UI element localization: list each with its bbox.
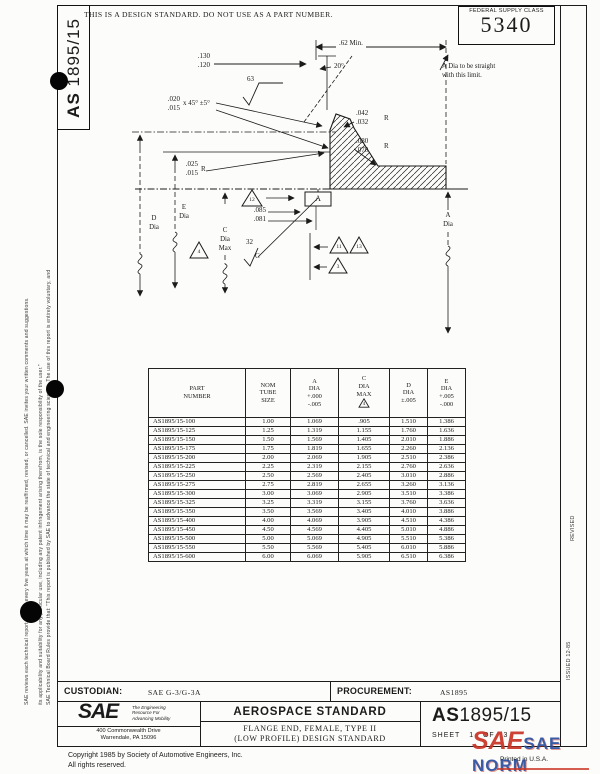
dimension-cell: 3.155 bbox=[339, 499, 390, 508]
table-row: AS1895/15-2252.252.3192.1552.7602.636 bbox=[149, 463, 466, 472]
table-row: AS1895/15-5505.505.5695.4056.0105.886 bbox=[149, 544, 466, 553]
part-number-cell: AS1895/15-275 bbox=[149, 481, 246, 490]
dimension-cell: 3.569 bbox=[291, 508, 339, 517]
dimension-cell: 2.636 bbox=[428, 463, 466, 472]
radius-r2: R bbox=[384, 142, 389, 151]
dimension-cell: 4.069 bbox=[291, 517, 339, 526]
dimension-cell: 4.886 bbox=[428, 526, 466, 535]
table-row: AS1895/15-3503.503.5693.4054.0103.886 bbox=[149, 508, 466, 517]
dimension-cell: 3.386 bbox=[428, 490, 466, 499]
titleblock-divider-2 bbox=[420, 701, 421, 746]
part-number-cell: AS1895/15-150 bbox=[149, 436, 246, 445]
flag-3-number: 3 bbox=[330, 264, 346, 270]
sae-address: 400 Commonwealth Drive Warrendale, PA 15… bbox=[62, 728, 195, 742]
dimension-cell: 4.386 bbox=[428, 517, 466, 526]
dimension-cell: 5.905 bbox=[339, 553, 390, 562]
revised-label: REVISED bbox=[570, 483, 576, 541]
dimension-cell: 2.25 bbox=[246, 463, 291, 472]
dimension-cell: 4.010 bbox=[390, 508, 428, 517]
dimension-cell: 1.655 bbox=[339, 445, 390, 454]
dimension-cell: 2.75 bbox=[246, 481, 291, 490]
table-row: AS1895/15-6006.006.0695.9056.5106.386 bbox=[149, 553, 466, 562]
table-row: AS1895/15-1001.001.069.9051.5101.386 bbox=[149, 418, 466, 427]
footer-doc-number: AS1895/15 bbox=[432, 705, 532, 727]
dimension-cell: 6.386 bbox=[428, 553, 466, 562]
dimension-cell: 2.905 bbox=[339, 490, 390, 499]
dimension-cell: 1.636 bbox=[428, 427, 466, 436]
flag-12-number: 12 bbox=[244, 197, 260, 203]
part-number-cell: AS1895/15-500 bbox=[149, 535, 246, 544]
flag-13-number: 13 bbox=[351, 244, 367, 250]
dimension-cell: 1.00 bbox=[246, 418, 291, 427]
custodian-value: SAE G-3/G-3A bbox=[148, 688, 201, 697]
dimension-cell: 3.510 bbox=[390, 490, 428, 499]
dimension-cell: 4.50 bbox=[246, 526, 291, 535]
dimension-cell: 2.386 bbox=[428, 454, 466, 463]
c-dia-label: C Dia Max bbox=[212, 226, 238, 253]
dimension-cell: 1.75 bbox=[246, 445, 291, 454]
dimension-cell: 4.405 bbox=[339, 526, 390, 535]
sae-logo: SAE bbox=[78, 702, 118, 722]
part-number-cell: AS1895/15-600 bbox=[149, 553, 246, 562]
custodian-row-bottom bbox=[57, 701, 560, 702]
parts-dimension-table: PART NUMBER NOM TUBE SIZE A DIA +.000 -.… bbox=[148, 368, 466, 562]
dimension-cell: 2.260 bbox=[390, 445, 428, 454]
custodian-divider bbox=[330, 681, 331, 701]
dimension-cell: 3.136 bbox=[428, 481, 466, 490]
finish-32-grade: C bbox=[255, 252, 260, 261]
punch-hole-bottom bbox=[20, 601, 42, 623]
col-header-a-dia: A DIA +.000 -.005 bbox=[291, 369, 339, 418]
dimension-cell: 1.886 bbox=[428, 436, 466, 445]
dimension-cell: 1.569 bbox=[291, 436, 339, 445]
part-number-cell: AS1895/15-400 bbox=[149, 517, 246, 526]
dimension-cell: 2.819 bbox=[291, 481, 339, 490]
dimension-cell: 2.510 bbox=[390, 454, 428, 463]
dimension-cell: 1.155 bbox=[339, 427, 390, 436]
dim-62-min: .62 Min. bbox=[336, 39, 366, 48]
datum-a-label: A bbox=[305, 194, 331, 203]
col-header-nom-tube-size: NOM TUBE SIZE bbox=[246, 369, 291, 418]
dimension-cell: 2.655 bbox=[339, 481, 390, 490]
issued-label: ISSUED 12-85 bbox=[566, 592, 572, 680]
dimension-cell: 3.905 bbox=[339, 517, 390, 526]
dimension-cell: 3.636 bbox=[428, 499, 466, 508]
col-header-d-dia: D DIA ±.005 bbox=[390, 369, 428, 418]
dimension-cell: 1.819 bbox=[291, 445, 339, 454]
dimension-cell: 2.760 bbox=[390, 463, 428, 472]
engineering-drawing bbox=[0, 0, 600, 360]
dimension-cell: 1.386 bbox=[428, 418, 466, 427]
flag-4-number: 4 bbox=[191, 249, 207, 255]
table-row: AS1895/15-1501.501.5691.4052.0101.886 bbox=[149, 436, 466, 445]
watermark-underline bbox=[497, 768, 589, 770]
dimension-cell: 5.069 bbox=[291, 535, 339, 544]
dimension-cell: 5.50 bbox=[246, 544, 291, 553]
dimension-cell: 1.319 bbox=[291, 427, 339, 436]
part-number-cell: AS1895/15-175 bbox=[149, 445, 246, 454]
dimension-cell: 5.405 bbox=[339, 544, 390, 553]
punch-hole-middle bbox=[46, 380, 64, 398]
dimension-cell: 1.50 bbox=[246, 436, 291, 445]
dimension-cell: 4.905 bbox=[339, 535, 390, 544]
finish-63-value: 63 bbox=[247, 75, 254, 84]
dimension-cell: 4.00 bbox=[246, 517, 291, 526]
dimension-cell: 2.010 bbox=[390, 436, 428, 445]
dimension-cell: 1.405 bbox=[339, 436, 390, 445]
dimension-cell: 2.405 bbox=[339, 472, 390, 481]
dimension-cell: 1.760 bbox=[390, 427, 428, 436]
document-page: AS 1895/15 THIS IS A DESIGN STANDARD. DO… bbox=[0, 0, 600, 774]
dimension-cell: 3.405 bbox=[339, 508, 390, 517]
table-row: AS1895/15-4504.504.5694.4055.0104.886 bbox=[149, 526, 466, 535]
aero-underline bbox=[200, 721, 420, 722]
dimension-cell: 3.50 bbox=[246, 508, 291, 517]
table-row: AS1895/15-2502.502.5692.4053.0102.886 bbox=[149, 472, 466, 481]
parts-table-body: AS1895/15-1001.001.069.9051.5101.386AS18… bbox=[149, 418, 466, 562]
dimension-cell: 2.886 bbox=[428, 472, 466, 481]
dimension-cell: 3.760 bbox=[390, 499, 428, 508]
table-row: AS1895/15-5005.005.0694.9055.5105.386 bbox=[149, 535, 466, 544]
copyright-notice: Copyright 1985 by Society of Automotive … bbox=[68, 751, 243, 770]
dimension-cell: 5.010 bbox=[390, 526, 428, 535]
dim-042-032: .042 .032 bbox=[356, 109, 382, 127]
dimension-cell: 3.010 bbox=[390, 472, 428, 481]
radius-r1: R bbox=[384, 114, 389, 123]
procurement-label: PROCUREMENT: bbox=[337, 686, 412, 696]
dimension-cell: 6.069 bbox=[291, 553, 339, 562]
part-number-cell: AS1895/15-250 bbox=[149, 472, 246, 481]
dimension-cell: 4.569 bbox=[291, 526, 339, 535]
dimension-cell: 1.069 bbox=[291, 418, 339, 427]
dimension-cell: 1.905 bbox=[339, 454, 390, 463]
a-dia-label: A Dia bbox=[436, 211, 460, 229]
flag-11-number: 11 bbox=[331, 244, 347, 250]
dimension-cell: 2.319 bbox=[291, 463, 339, 472]
dimension-cell: 2.155 bbox=[339, 463, 390, 472]
dimension-cell: 6.510 bbox=[390, 553, 428, 562]
table-row: AS1895/15-2002.002.0691.9052.5102.386 bbox=[149, 454, 466, 463]
dimension-cell: 6.00 bbox=[246, 553, 291, 562]
finish-32-value: 32 bbox=[246, 238, 253, 247]
dimension-cell: 3.25 bbox=[246, 499, 291, 508]
finish-63-symbol bbox=[243, 83, 283, 105]
watermark-sae-logo: SAE bbox=[472, 727, 523, 755]
dimension-cell: 1.510 bbox=[390, 418, 428, 427]
table-row: AS1895/15-3003.003.0692.9053.5103.386 bbox=[149, 490, 466, 499]
dimension-cell: .905 bbox=[339, 418, 390, 427]
col-header-c-dia-max: C DIA MAX 4 bbox=[339, 369, 390, 418]
dim-20-degrees: 20° bbox=[334, 62, 344, 71]
custodian-row-top bbox=[57, 681, 560, 682]
procurement-value: AS1895 bbox=[440, 688, 468, 697]
dimension-cell: 2.50 bbox=[246, 472, 291, 481]
dimension-cell: 3.069 bbox=[291, 490, 339, 499]
sae-norm-watermark: SAESAE NORM INTERNATIONAL bbox=[472, 727, 600, 774]
radius-r3: R bbox=[201, 165, 206, 174]
table-row: AS1895/15-3253.253.3193.1553.7603.636 bbox=[149, 499, 466, 508]
standard-title: FLANGE END, FEMALE, TYPE II (LOW PROFILE… bbox=[200, 724, 420, 744]
dim-025-015: .025 .015 bbox=[172, 160, 198, 178]
dimension-cell: 5.386 bbox=[428, 535, 466, 544]
dimension-cell: 6.010 bbox=[390, 544, 428, 553]
table-row: AS1895/15-1251.251.3191.1551.7601.636 bbox=[149, 427, 466, 436]
dimension-cell: 3.886 bbox=[428, 508, 466, 517]
dim-080-070: .080 .070 bbox=[356, 137, 382, 155]
dimension-cell: 2.00 bbox=[246, 454, 291, 463]
table-row: AS1895/15-2752.752.8192.6553.2603.136 bbox=[149, 481, 466, 490]
dimension-cell: 2.569 bbox=[291, 472, 339, 481]
part-number-cell: AS1895/15-225 bbox=[149, 463, 246, 472]
part-number-cell: AS1895/15-350 bbox=[149, 508, 246, 517]
table-header-row: PART NUMBER NOM TUBE SIZE A DIA +.000 -.… bbox=[149, 369, 466, 418]
table-row: AS1895/15-1751.751.8191.6552.2602.136 bbox=[149, 445, 466, 454]
dimension-cell: 5.510 bbox=[390, 535, 428, 544]
part-number-cell: AS1895/15-300 bbox=[149, 490, 246, 499]
dimension-cell: 3.00 bbox=[246, 490, 291, 499]
col-header-e-dia: E DIA +.005 -.000 bbox=[428, 369, 466, 418]
part-number-cell: AS1895/15-325 bbox=[149, 499, 246, 508]
part-number-cell: AS1895/15-200 bbox=[149, 454, 246, 463]
dim-020-015: .020 .015 bbox=[152, 95, 180, 113]
dimension-cell: 3.260 bbox=[390, 481, 428, 490]
custodian-label: CUSTODIAN: bbox=[64, 686, 122, 696]
c-dia-flag-icon: 4 bbox=[358, 398, 370, 408]
dim-085-081: .085 .081 bbox=[240, 206, 266, 224]
col-header-part-number: PART NUMBER bbox=[149, 369, 246, 418]
d-dia-label: D Dia bbox=[142, 214, 166, 232]
dimension-cell: 4.510 bbox=[390, 517, 428, 526]
dimension-cell: 1.25 bbox=[246, 427, 291, 436]
aerospace-standard-heading: AEROSPACE STANDARD bbox=[200, 706, 420, 718]
dimension-cell: 5.569 bbox=[291, 544, 339, 553]
dim-130-120: .130 .120 bbox=[180, 52, 210, 70]
note-a-dia-straight: A Dia to be straight with this limit. bbox=[442, 62, 534, 80]
dimension-cell: 5.886 bbox=[428, 544, 466, 553]
dimension-cell: 2.136 bbox=[428, 445, 466, 454]
e-dia-label: E Dia bbox=[172, 203, 196, 221]
dimension-cell: 2.069 bbox=[291, 454, 339, 463]
chamfer-angle: x 45° ±5° bbox=[183, 99, 210, 108]
table-row: AS1895/15-4004.004.0693.9054.5104.386 bbox=[149, 517, 466, 526]
part-number-cell: AS1895/15-125 bbox=[149, 427, 246, 436]
dimension-cell: 5.00 bbox=[246, 535, 291, 544]
part-number-cell: AS1895/15-100 bbox=[149, 418, 246, 427]
sae-tagline: The Engineering Resource For Advancing M… bbox=[132, 705, 170, 721]
part-number-cell: AS1895/15-550 bbox=[149, 544, 246, 553]
dimension-cell: 3.319 bbox=[291, 499, 339, 508]
address-divider bbox=[57, 726, 200, 727]
part-number-cell: AS1895/15-450 bbox=[149, 526, 246, 535]
